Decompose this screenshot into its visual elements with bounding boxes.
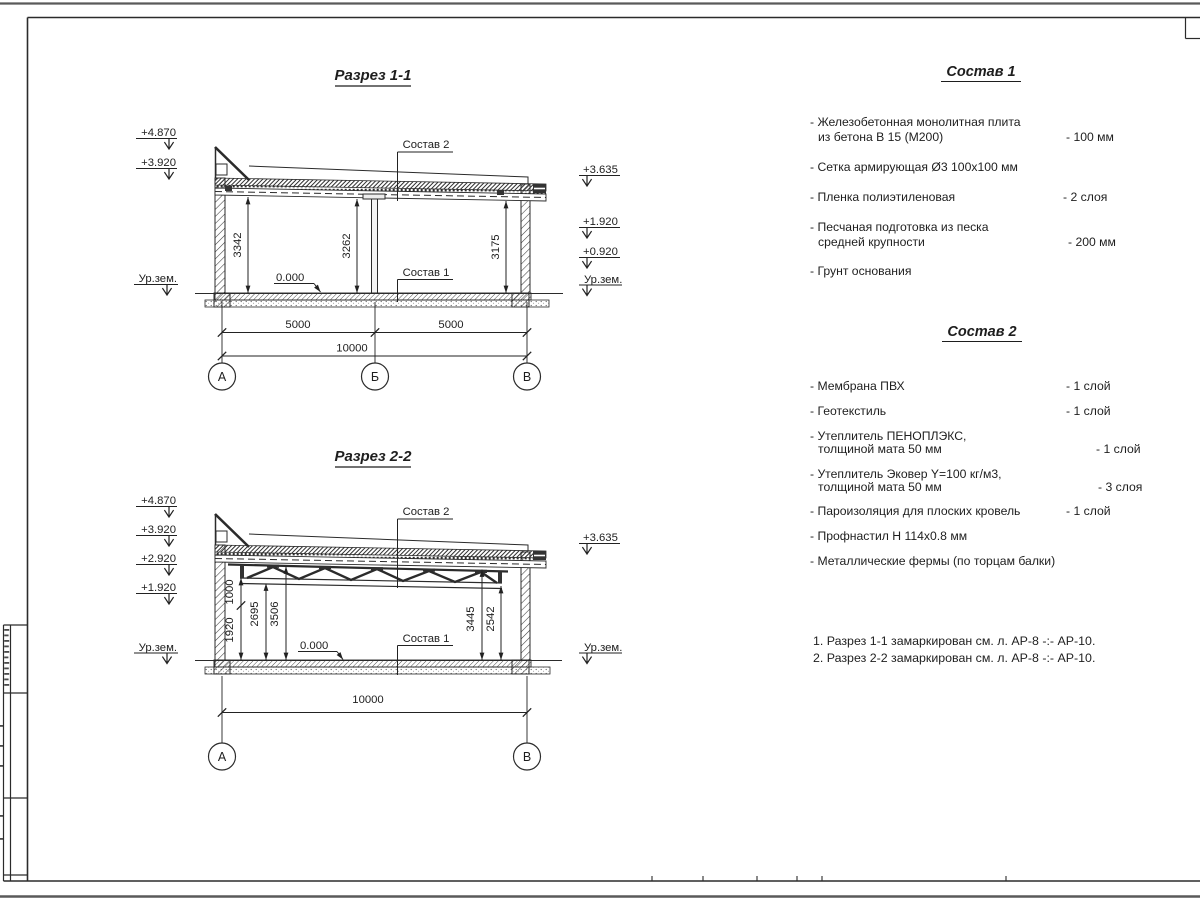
axis-letter: В [523, 370, 531, 384]
level-mark: +1.920 [583, 216, 618, 228]
section2-structure [195, 514, 562, 674]
height-dim: 1000 [224, 579, 236, 604]
list-item: - Утеплитель Эковер Y=100 кг/м3, [810, 467, 1002, 481]
list-item-line2: толщиной мата 50 мм [818, 480, 942, 494]
level-mark: +4.870 [141, 127, 176, 139]
corner-stamp-box [1186, 18, 1200, 39]
total-dim: 10000 [336, 343, 367, 355]
list-item-line2: толщиной мата 50 мм [818, 442, 942, 456]
height-dim: 2695 [249, 601, 261, 626]
section2-levels-left: +4.870 +3.920 +2.920 +1.920 Ур.зем. [134, 495, 178, 664]
list-item-value: - 1 слой [1066, 404, 1111, 418]
composition2-list: - Мембрана ПВХ - 1 слой - Геотекстиль - … [810, 0, 1160, 600]
list-item-value: - 1 слой [1096, 442, 1141, 456]
height-dim: 2542 [485, 606, 497, 631]
section1-bottom-dims [218, 302, 531, 363]
callout-label: Состав 1 [403, 633, 450, 645]
level-mark: +3.635 [583, 532, 618, 544]
span-dim: 5000 [285, 319, 310, 331]
level-mark: +4.870 [141, 495, 176, 507]
zero-level-label: 0.000 [300, 640, 328, 652]
zero-level-label: 0.000 [276, 272, 304, 284]
height-dim: 3262 [341, 233, 353, 258]
section2-bottom-dims [218, 676, 531, 743]
note-line: 1. Разрез 1-1 замаркирован см. л. АР-8 -… [813, 633, 1095, 650]
section2-zero-mark: 0.000 [298, 640, 343, 660]
list-item: - Мембрана ПВХ [810, 379, 905, 393]
section1-axes: А Б В [209, 363, 541, 390]
list-item: - Утеплитель ПЕНОПЛЭКС, [810, 429, 966, 443]
list-item: - Пароизоляция для плоских кровель [810, 504, 1020, 518]
list-item: - Геотекстиль [810, 404, 886, 418]
section2-callout-roof: Состав 2 [398, 506, 454, 588]
height-dim: 3506 [269, 601, 281, 626]
list-item-value: - 1 слой [1066, 379, 1111, 393]
section1-levels-right: +3.635 +1.920 +0.920 Ур.зем. [579, 164, 622, 296]
callout-label: Состав 2 [403, 139, 450, 151]
axis-letter: А [218, 370, 227, 384]
level-mark: Ур.зем. [584, 642, 622, 654]
level-mark: Ур.зем. [584, 274, 622, 286]
level-mark: +1.920 [141, 582, 176, 594]
axis-letter: А [218, 750, 227, 764]
axis-letter: В [523, 750, 531, 764]
height-dim: 3175 [490, 234, 502, 259]
stamp-strip-illegible-text [0, 629, 9, 840]
level-mark: Ур.зем. [139, 273, 177, 285]
callout-label: Состав 1 [403, 267, 450, 279]
section1-levels-left: +4.870 +3.920 Ур.зем. [134, 127, 178, 295]
level-mark: +3.920 [141, 524, 176, 536]
note-line: 2. Разрез 2-2 замаркирован см. л. АР-8 -… [813, 650, 1095, 667]
list-item-value: - 1 слой [1066, 504, 1111, 518]
notes: 1. Разрез 1-1 замаркирован см. л. АР-8 -… [813, 633, 1095, 667]
level-mark: +3.920 [141, 157, 176, 169]
level-mark: Ур.зем. [139, 642, 177, 654]
list-item-value: - 3 слоя [1098, 480, 1142, 494]
height-dim: 3342 [232, 232, 244, 257]
section1-structure [195, 147, 563, 307]
list-item: - Профнастил Н 114х0.8 мм [810, 529, 967, 543]
section2-levels-right: +3.635 Ур.зем. [579, 532, 622, 664]
axis-letter: Б [371, 370, 379, 384]
section-2-2: Разрез 2-2 [134, 448, 622, 770]
section2-axes: А В [209, 743, 541, 770]
level-mark: +0.920 [583, 246, 618, 258]
list-item: - Металлические фермы (по торцам балки) [810, 554, 1055, 568]
span-dim: 5000 [438, 319, 463, 331]
section-1-1: Разрез 1-1 [134, 67, 622, 390]
height-dim: 3445 [465, 606, 477, 631]
callout-label: Состав 2 [403, 506, 450, 518]
section2-title: Разрез 2-2 [334, 448, 412, 465]
section1-zero-mark: 0.000 [274, 272, 321, 292]
drawing-sheet: Разрез 1-1 [0, 0, 1200, 900]
titleblock-ticks [652, 876, 1006, 881]
height-dim: 1920 [224, 617, 236, 642]
total-dim: 10000 [352, 694, 383, 706]
level-mark: +3.635 [583, 164, 618, 176]
section1-title: Разрез 1-1 [334, 67, 411, 84]
level-mark: +2.920 [141, 553, 176, 565]
